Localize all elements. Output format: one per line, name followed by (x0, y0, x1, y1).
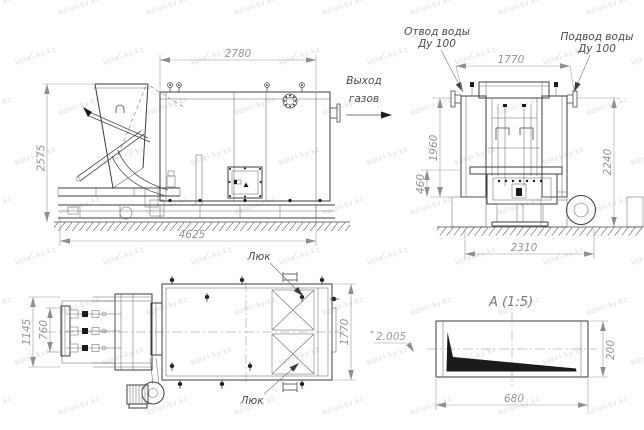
dim-680: 680 (504, 393, 524, 405)
ground-hatch-side (437, 227, 643, 236)
water-inlet-text-2: Ду 100 (577, 43, 616, 55)
side-dim-460: 460 (415, 170, 461, 197)
detail-dim-680: 680 (436, 379, 588, 410)
water-outlet-text-1: Отвод воды (404, 26, 470, 38)
ref-value: 2.005 (376, 331, 406, 343)
top-flange-stub (283, 272, 297, 282)
bottom-flange-stub (283, 382, 297, 392)
foundation-block-left (452, 197, 486, 227)
screw-shafts (66, 310, 121, 352)
dim-1960: 1960 (428, 134, 440, 161)
gas-flow-arrow-icon (346, 112, 392, 119)
top-view: Люк Люк (21, 251, 356, 408)
dim-2575: 2575 (36, 144, 48, 171)
ref-mark: * (370, 329, 374, 338)
hatch-top-text: Люк (246, 251, 271, 263)
gas-outlet-text-2: газов (349, 93, 379, 105)
furnace-door (228, 167, 262, 198)
dim-1145: 1145 (21, 318, 33, 345)
dim-2780: 2780 (225, 48, 252, 60)
water-inlet-flange (567, 91, 577, 107)
dim-460: 460 (415, 174, 427, 194)
dim-2310: 2310 (511, 242, 538, 254)
feeder-assembly (61, 294, 164, 408)
valve-icons (168, 83, 305, 92)
hatch-top-box (272, 290, 314, 330)
front-dim-2575: 2575 (36, 84, 96, 222)
grate-blade-profile (447, 332, 577, 372)
hatch-label-bottom: Люк (239, 363, 299, 407)
side-view: Отвод воды Ду 100 Подвод воды Ду 100 177… (404, 26, 643, 259)
side-dim-1960: 1960 (428, 98, 452, 197)
base-frame (58, 200, 335, 218)
bolt-icons (170, 276, 339, 389)
water-outlet-flange (451, 91, 461, 107)
gas-outlet-text-1: Выход (346, 75, 381, 87)
flange-icon (283, 94, 297, 108)
hatch-bottom-text: Люк (239, 395, 264, 407)
water-inlet-label: Подвод воды Ду 100 (561, 31, 634, 92)
foundation-block-far-right (627, 197, 643, 227)
detail-view-a: А (1:5) * 2.005 680 (370, 295, 617, 410)
dim-1770-top: 1770 (339, 318, 351, 345)
drawing-canvas: 2780 2575 4625 (0, 0, 644, 430)
boiler-body (160, 83, 340, 202)
hatch-label-top: Люк (246, 251, 303, 296)
water-inlet-text-1: Подвод воды (561, 31, 634, 43)
dim-1770-side: 1770 (498, 54, 525, 66)
fan-motor (127, 358, 164, 408)
technical-drawing-page: kotel-kv.kzkotel-kv.kzkotel-kv.kzkotel-k… (0, 0, 644, 430)
dim-200: 200 (605, 340, 617, 360)
dim-2240: 2240 (602, 148, 614, 175)
water-outlet-text-2: Ду 100 (417, 38, 456, 50)
detail-ref-label: * 2.005 (370, 329, 414, 352)
dim-760: 760 (38, 320, 50, 340)
detail-title: А (1:5) (488, 295, 533, 310)
top-dim-760: 760 (38, 308, 61, 352)
gas-outlet-label: Выход газов (346, 75, 392, 119)
front-view: 2780 2575 4625 (36, 48, 393, 246)
front-dim-2780: 2780 (160, 48, 316, 90)
fuel-hopper (58, 84, 202, 219)
side-dim-2240: 2240 (577, 98, 620, 227)
ground-hatch-front (54, 222, 350, 231)
